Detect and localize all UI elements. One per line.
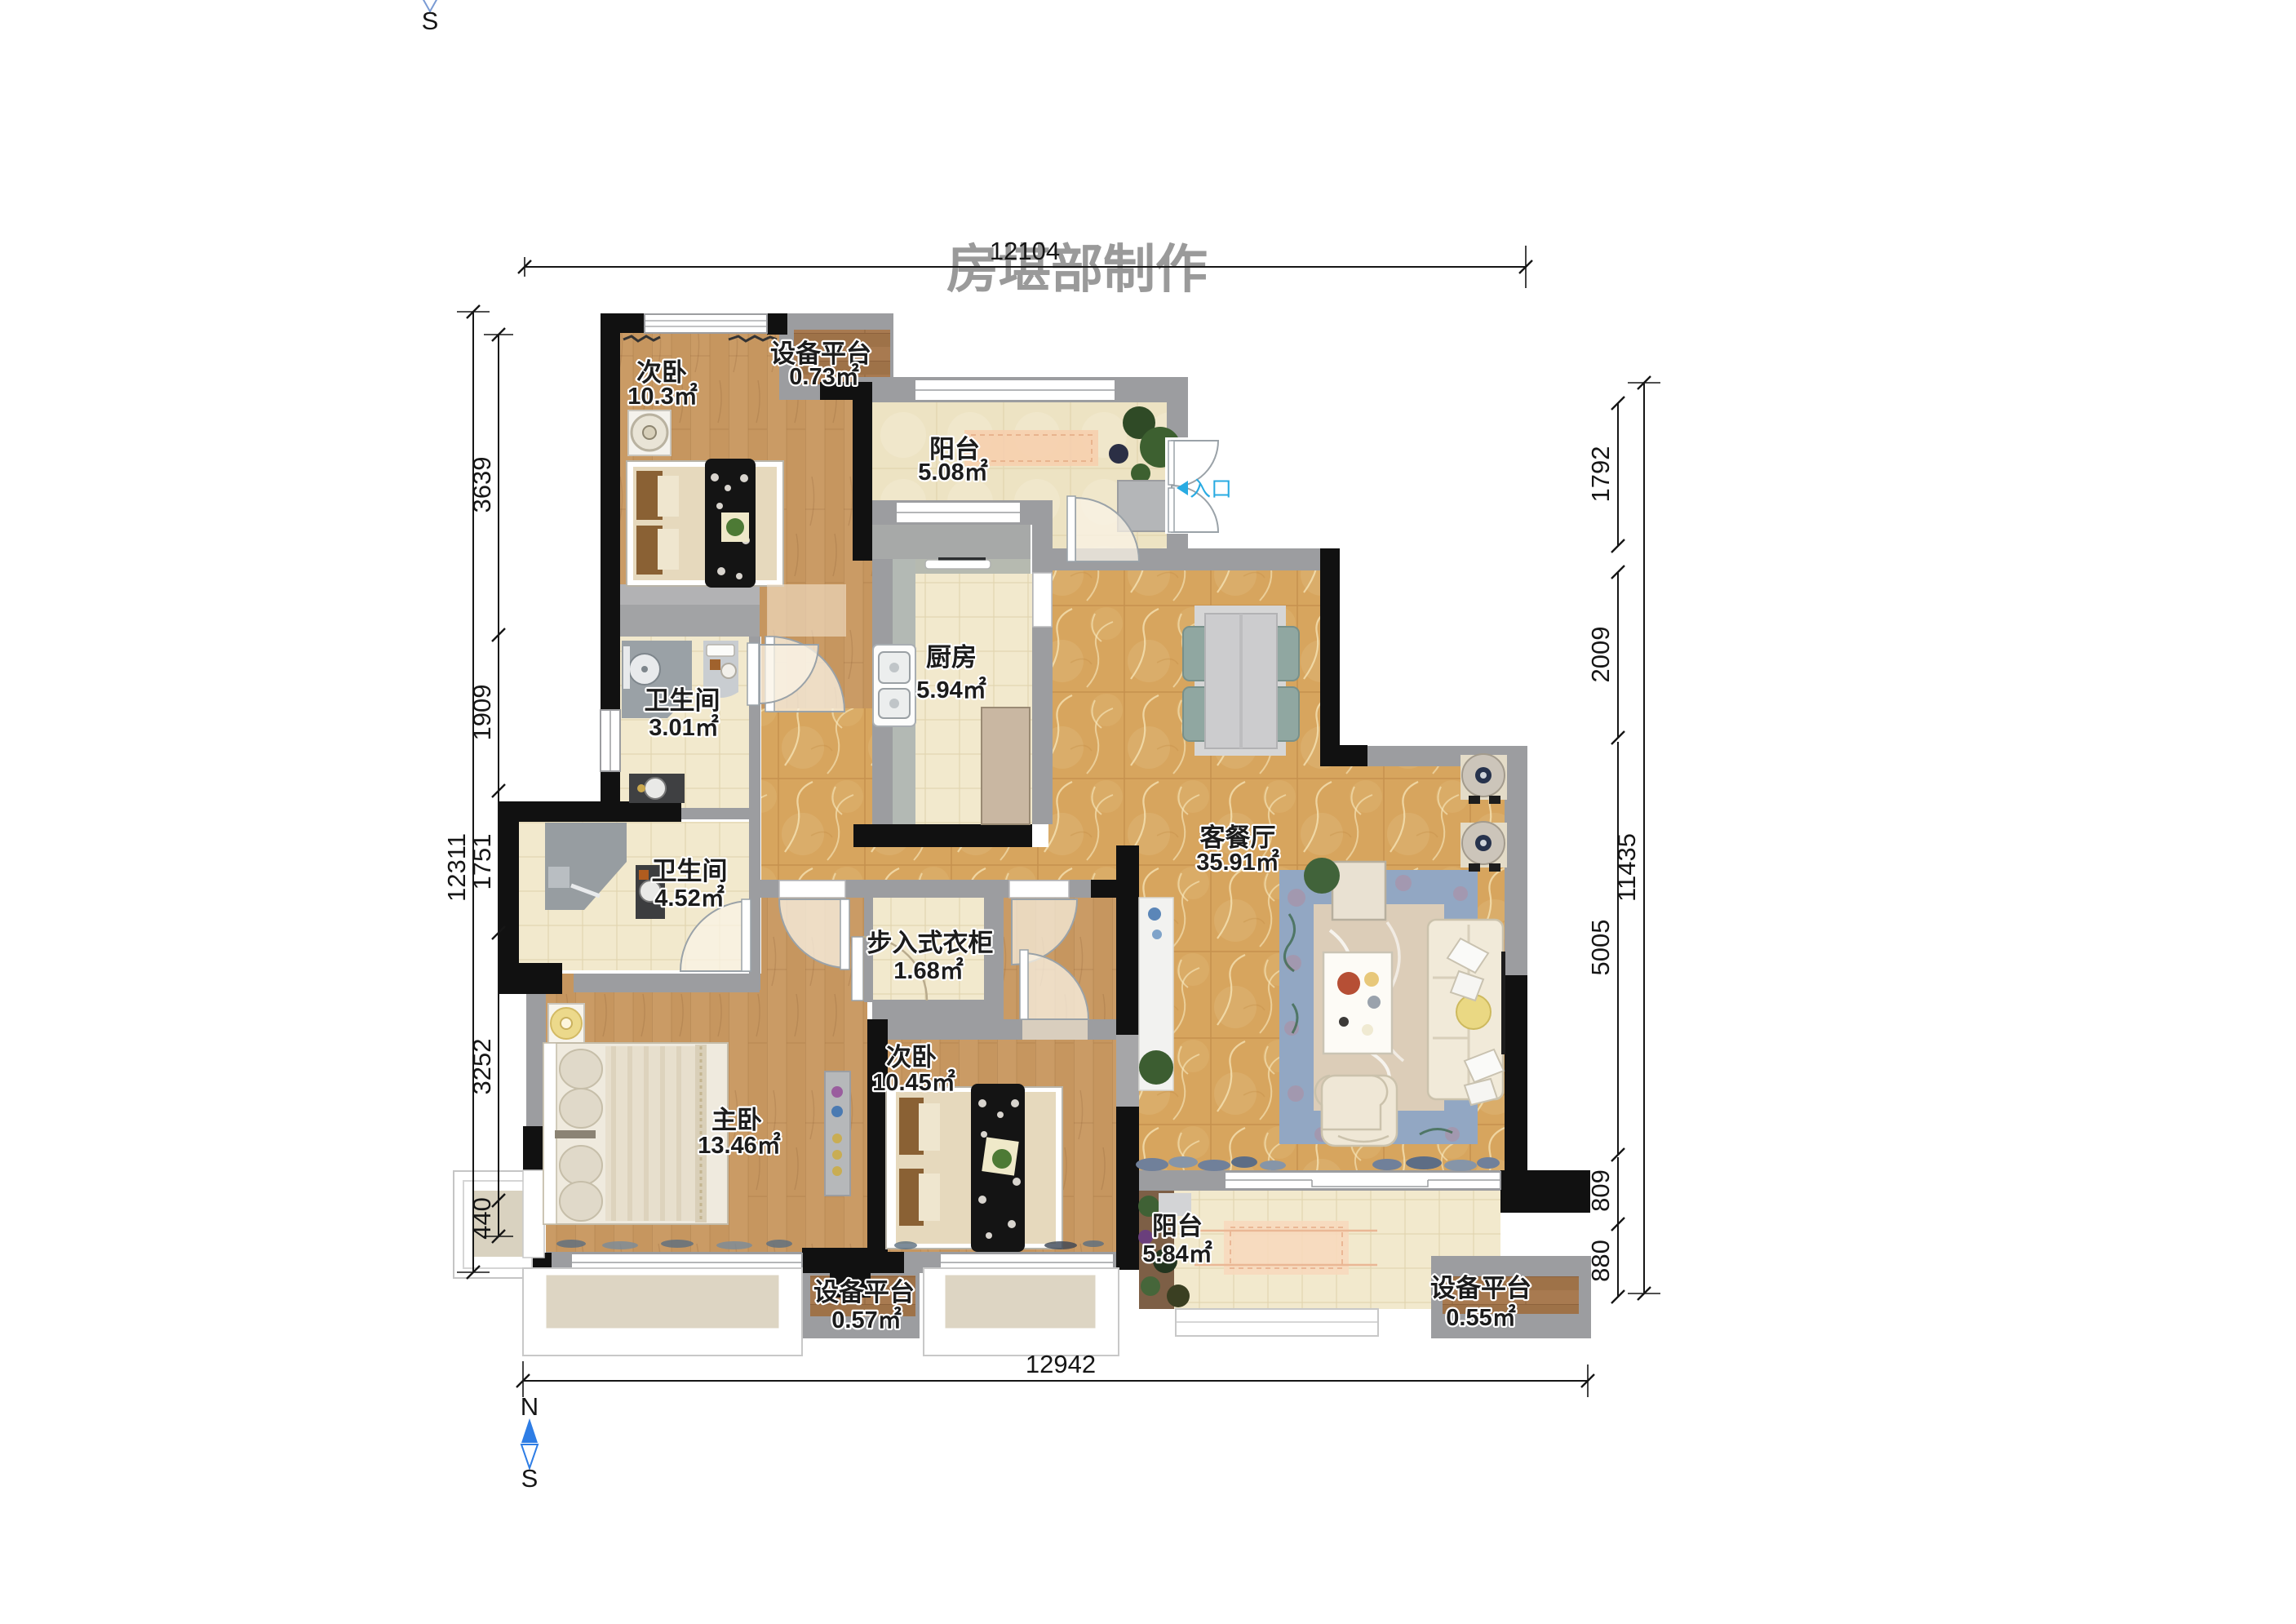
svg-text:卫生间: 卫生间 [645, 686, 720, 715]
svg-text:N: N [521, 1392, 539, 1421]
svg-text:0.73㎡: 0.73㎡ [789, 362, 858, 390]
svg-text:房堪部制作: 房堪部制作 [946, 240, 1208, 299]
svg-text:1751: 1751 [468, 834, 496, 890]
svg-text:12104: 12104 [990, 237, 1060, 265]
svg-text:880: 880 [1586, 1240, 1615, 1282]
svg-text:5.84㎡: 5.84㎡ [1142, 1240, 1212, 1267]
svg-text:12311: 12311 [442, 833, 471, 902]
svg-text:10.3㎡: 10.3㎡ [627, 382, 697, 410]
svg-text:35.91㎡: 35.91㎡ [1196, 848, 1279, 876]
svg-text:440: 440 [468, 1197, 496, 1240]
svg-text:13.46㎡: 13.46㎡ [698, 1131, 781, 1159]
svg-text:设备平台: 设备平台 [813, 1278, 915, 1307]
svg-text:次卧: 次卧 [636, 358, 687, 387]
svg-text:5005: 5005 [1586, 920, 1615, 976]
svg-text:1.68㎡: 1.68㎡ [893, 956, 963, 984]
svg-text:3639: 3639 [468, 457, 496, 513]
svg-text:1792: 1792 [1586, 446, 1615, 503]
svg-text:10.45㎡: 10.45㎡ [872, 1068, 955, 1096]
svg-text:809: 809 [1586, 1169, 1615, 1212]
svg-text:卫生间: 卫生间 [652, 857, 728, 885]
svg-text:设备平台: 设备平台 [1430, 1274, 1531, 1302]
svg-text:2009: 2009 [1586, 627, 1615, 683]
svg-text:S: S [422, 7, 439, 35]
svg-text:主卧: 主卧 [711, 1106, 762, 1134]
svg-text:0.55㎡: 0.55㎡ [1446, 1303, 1515, 1331]
svg-text:S: S [521, 1464, 539, 1493]
svg-text:入口: 入口 [1190, 477, 1232, 501]
svg-text:12942: 12942 [1026, 1350, 1096, 1378]
svg-text:次卧: 次卧 [886, 1043, 937, 1072]
svg-text:4.52㎡: 4.52㎡ [654, 884, 724, 912]
svg-text:1909: 1909 [468, 685, 496, 741]
svg-text:0.57㎡: 0.57㎡ [831, 1306, 901, 1333]
svg-text:客餐厅: 客餐厅 [1200, 823, 1276, 852]
svg-text:步入式衣柜: 步入式衣柜 [867, 929, 994, 957]
svg-text:厨房: 厨房 [926, 643, 977, 672]
svg-text:3252: 3252 [468, 1039, 496, 1095]
svg-text:5.08㎡: 5.08㎡ [918, 458, 987, 486]
svg-text:11435: 11435 [1612, 833, 1641, 902]
svg-text:3.01㎡: 3.01㎡ [649, 713, 718, 741]
svg-text:5.94㎡: 5.94㎡ [916, 676, 986, 703]
svg-text:阳台: 阳台 [1152, 1212, 1203, 1240]
